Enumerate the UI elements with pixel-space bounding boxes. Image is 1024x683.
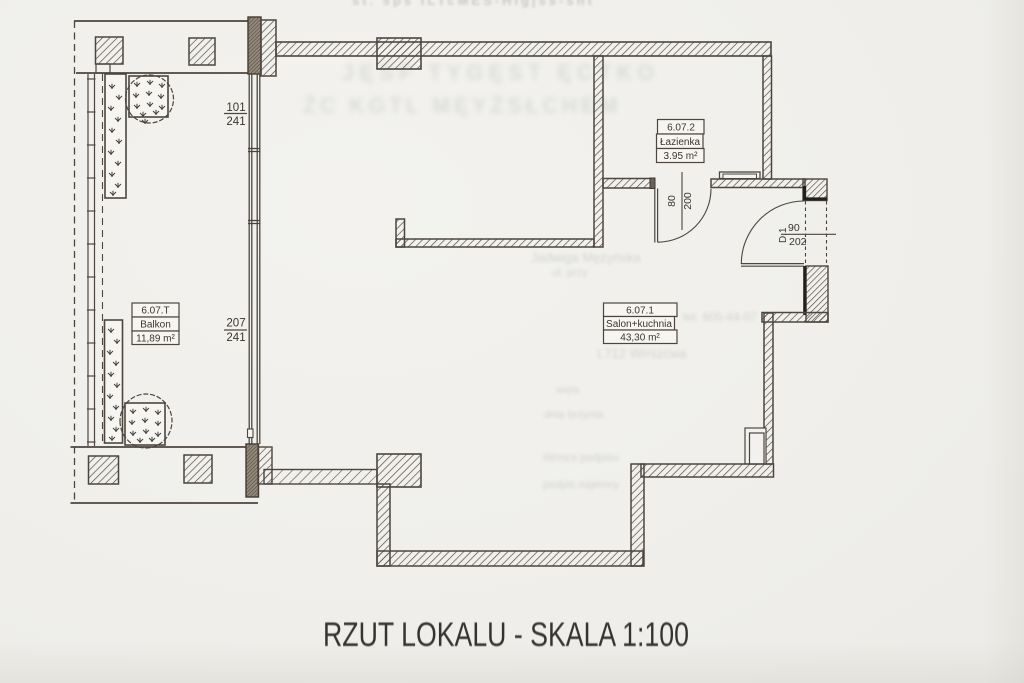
svg-text:202: 202: [789, 236, 807, 248]
svg-text:101: 101: [226, 102, 245, 114]
svg-text:200: 200: [682, 192, 694, 210]
svg-text:241: 241: [226, 116, 245, 128]
svg-text:3.95 m²: 3.95 m²: [664, 151, 699, 162]
svg-text:Balkon: Balkon: [140, 320, 171, 331]
svg-text:6.07.2: 6.07.2: [667, 123, 695, 134]
svg-text:241: 241: [226, 332, 245, 344]
svg-text:80: 80: [666, 195, 678, 207]
svg-text:11,89 m²: 11,89 m²: [136, 334, 175, 345]
svg-text:6.07.1: 6.07.1: [626, 306, 654, 317]
svg-text:90: 90: [788, 222, 800, 234]
svg-text:Salon+kuchnia: Salon+kuchnia: [606, 319, 672, 330]
svg-text:207: 207: [226, 318, 245, 330]
svg-text:43,30 m²: 43,30 m²: [620, 333, 660, 344]
svg-text:6.07.T: 6.07.T: [141, 306, 169, 317]
svg-text:D.1: D.1: [778, 227, 789, 243]
svg-text:Łazienka: Łazienka: [660, 137, 700, 148]
